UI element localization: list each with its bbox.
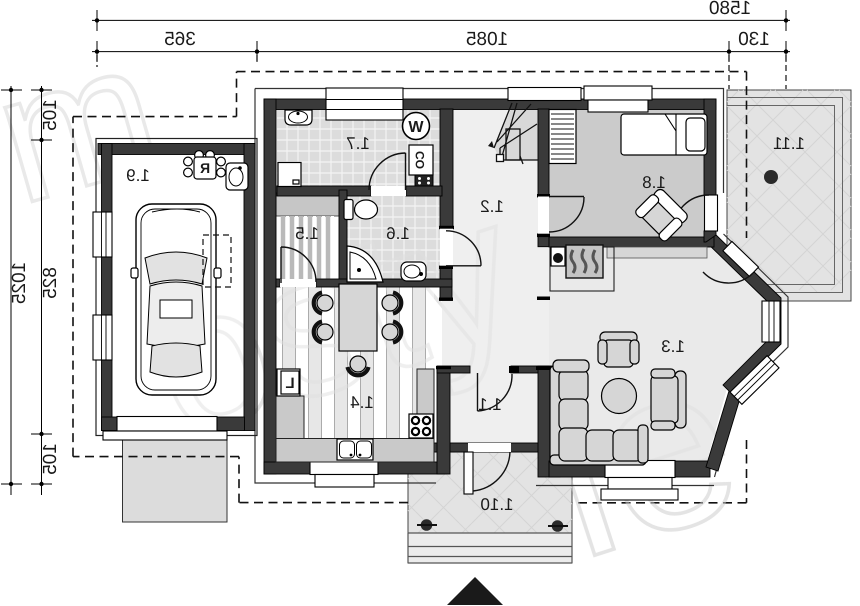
svg-text:825: 825 [40,267,61,299]
svg-text:R: R [200,160,210,176]
svg-text:1.5: 1.5 [295,224,319,243]
svg-text:1.11: 1.11 [773,134,805,153]
svg-text:1.4: 1.4 [350,393,374,412]
svg-text:1.3: 1.3 [661,337,685,356]
svg-text:1.9: 1.9 [126,166,150,185]
svg-text:1.10: 1.10 [480,495,513,514]
svg-text:1.1: 1.1 [478,395,502,414]
svg-text:1.7: 1.7 [346,134,370,153]
svg-text:365: 365 [164,29,196,50]
svg-text:105: 105 [40,443,61,475]
svg-text:1.8: 1.8 [642,173,666,192]
svg-text:1580: 1580 [709,0,751,19]
svg-text:W: W [408,119,424,136]
svg-text:1.2: 1.2 [480,197,504,216]
svg-text:130: 130 [738,29,770,50]
svg-text:L: L [285,375,294,392]
svg-text:1025: 1025 [9,262,30,304]
svg-text:105: 105 [40,99,61,131]
svg-text:1085: 1085 [466,29,508,50]
svg-text:1.6: 1.6 [386,224,410,243]
svg-text:CO: CO [413,151,427,169]
